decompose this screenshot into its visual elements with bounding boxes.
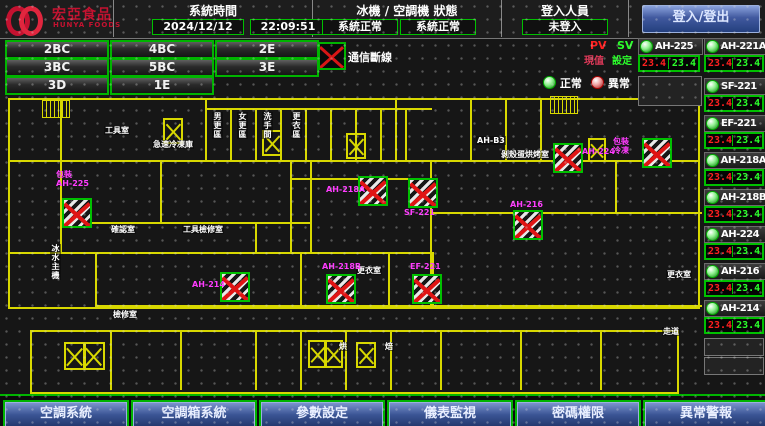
unit-name: AH-225	[655, 41, 693, 52]
time-display: 22:09:51	[250, 19, 326, 35]
sv-value: 23.4	[668, 58, 698, 69]
unit-row-AH-216[interactable]: AH-216	[704, 263, 765, 280]
device-label-line: AH-224	[582, 147, 615, 156]
room-label: 男更區	[212, 112, 223, 139]
unit-values-SF-221: 23.423.4	[704, 95, 764, 112]
wall	[8, 160, 543, 162]
status-lamp-AH-224	[706, 228, 719, 241]
zone-button-4BC[interactable]: 4BC	[110, 40, 214, 59]
header-divider	[628, 0, 629, 37]
unit-values-AH-221A: 23.423.4	[704, 55, 764, 72]
device-icon-冷凍[interactable]	[642, 138, 672, 168]
unit-name: SF-221	[721, 81, 757, 92]
zone-button-3E[interactable]: 3E	[215, 58, 319, 77]
login-status-display: 未登入	[522, 19, 608, 35]
room-label: 確認室	[110, 225, 136, 234]
room-label: 更衣區	[291, 112, 302, 139]
pv-value: 23.4	[706, 209, 732, 220]
wall	[330, 108, 332, 160]
device-icon-EF-221[interactable]	[412, 274, 442, 304]
nav-frame: 密碼權限	[515, 400, 641, 426]
device-icon-AH-218B[interactable]	[326, 274, 356, 304]
device-label-line: SF-221	[404, 208, 435, 217]
unit-name: EF-221	[721, 118, 756, 129]
wall	[110, 330, 112, 390]
comm-loss-icon	[318, 42, 346, 70]
device-label-AH-218A: AH-218A	[326, 185, 365, 194]
pv-value: 23.4	[706, 320, 732, 331]
wall	[180, 330, 182, 390]
header-divider	[113, 0, 114, 37]
device-label-line: AH-216	[510, 200, 543, 209]
login-logout-button[interactable]: 登入/登出	[642, 5, 760, 33]
zone-button-1E[interactable]: 1E	[110, 76, 214, 95]
unit-name: AH-224	[721, 229, 759, 240]
shaft-icon	[356, 342, 376, 368]
nav-frame: 儀表監視	[387, 400, 513, 426]
pv-header: PV	[590, 39, 607, 52]
unit-values-AH-216: 23.423.4	[704, 280, 764, 297]
empty-slot	[638, 76, 702, 106]
zone-button-3BC[interactable]: 3BC	[5, 58, 109, 77]
room-label: 冰水主機	[50, 244, 61, 280]
unit-row-AH-225[interactable]: AH-225	[638, 38, 703, 55]
device-label-line: 包裝	[56, 170, 89, 179]
device-label-AH-214: AH-214	[192, 280, 225, 289]
unit-row-AH-224[interactable]: AH-224	[704, 226, 765, 243]
wall	[205, 108, 432, 110]
normal-legend-label: 正常	[560, 77, 582, 90]
abnormal-lamp-legend: 異常	[591, 75, 630, 91]
normal-lamp-legend: 正常	[543, 75, 582, 91]
device-label-line: AH-225	[56, 179, 89, 188]
unit-values-EF-221: 23.423.4	[704, 132, 764, 149]
device-icon-AH-216[interactable]	[513, 210, 543, 240]
zone-button-5BC[interactable]: 5BC	[110, 58, 214, 77]
wall	[300, 330, 302, 390]
unit-name: AH-214	[721, 303, 759, 314]
room-label: 更衣室	[666, 270, 692, 279]
wall	[205, 98, 207, 160]
status-lamp-AH-214	[706, 302, 719, 315]
stairs-icon	[550, 96, 578, 114]
wall	[255, 108, 257, 160]
wall	[388, 252, 390, 305]
nav-button-空調系統[interactable]: 空調系統	[5, 402, 127, 426]
room-label: 焙	[384, 342, 394, 351]
wall	[8, 252, 433, 254]
device-label-冷凍: 包裝冷凍	[613, 137, 629, 155]
nav-button-異常警報[interactable]: 異常警報	[645, 402, 765, 426]
hmi-screen: 宏亞食品 HUNYA FOODS 系統時間 2024/12/12 22:09:5…	[0, 0, 765, 426]
logo-subtitle: HUNYA FOODS	[53, 21, 121, 29]
wall	[600, 330, 602, 390]
empty-slot	[704, 357, 764, 375]
status-lamp-AH-218A	[706, 154, 719, 167]
device-label-AH-224: AH-224	[582, 147, 615, 156]
wall	[390, 330, 392, 390]
device-label-line: AH-218B	[322, 262, 361, 271]
nav-button-儀表監視[interactable]: 儀表監視	[389, 402, 511, 426]
pv-value: 23.4	[706, 135, 732, 146]
pv-value: 23.4	[640, 58, 666, 69]
sv-value: 23.4	[732, 246, 762, 257]
room-label: 女更區	[237, 112, 248, 139]
empty-slot	[704, 338, 764, 356]
unit-row-AH-218B[interactable]: AH-218B	[704, 189, 765, 206]
device-label-line: AH-214	[192, 280, 225, 289]
unit-values-AH-224: 23.423.4	[704, 243, 764, 260]
unit-row-SF-221[interactable]: SF-221	[704, 78, 765, 95]
comm-loss-legend-label: 通信斷線	[348, 49, 392, 65]
room-label: 急速冷凍庫	[152, 140, 194, 149]
nav-frame: 空調系統	[3, 400, 129, 426]
wall	[310, 160, 312, 254]
unit-name: AH-218A	[721, 155, 765, 166]
abnormal-legend-label: 異常	[608, 77, 630, 90]
sv-value: 23.4	[732, 209, 762, 220]
chiller-status-display: 系統正常	[322, 19, 398, 35]
sv-header: SV	[617, 39, 633, 52]
wall	[405, 108, 407, 160]
system-time-label: 系統時間	[116, 2, 310, 19]
login-user-label: 登入人員	[504, 2, 626, 19]
room-label: 剝殼蛋烘烤室	[500, 150, 550, 159]
wall	[380, 108, 382, 160]
device-label-line: EF-221	[410, 262, 441, 271]
wall	[95, 305, 702, 307]
device-label-AH-216: AH-216	[510, 200, 543, 209]
stairs-icon	[42, 100, 70, 118]
wall	[95, 252, 97, 307]
unit-values-AH-218B: 23.423.4	[704, 206, 764, 223]
header-bar: 宏亞食品 HUNYA FOODS 系統時間 2024/12/12 22:09:5…	[0, 0, 765, 39]
wall	[395, 98, 397, 160]
unit-values-AH-225: 23.423.4	[638, 55, 700, 72]
status-lamp-AH-216	[706, 265, 719, 278]
wall	[255, 222, 257, 254]
unit-name: AH-221A	[721, 41, 765, 52]
wall	[430, 212, 702, 214]
normal-lamp-icon	[543, 76, 556, 89]
wall	[230, 108, 232, 160]
room-label: 工具室	[104, 126, 130, 135]
date-display: 2024/12/12	[152, 19, 244, 35]
building-outline	[30, 330, 679, 394]
machine-status-label: 冰機 / 空調機 狀態	[315, 2, 499, 19]
status-lamp-AH-225	[640, 40, 653, 53]
status-lamp-AH-221A	[706, 40, 719, 53]
status-lamp-EF-221	[706, 117, 719, 130]
sv-value: 23.4	[732, 172, 762, 183]
device-label-EF-221: EF-221	[410, 262, 441, 271]
unit-values-AH-214: 23.423.4	[704, 317, 764, 334]
sv-value: 23.4	[732, 58, 762, 69]
wall	[345, 330, 347, 390]
shaft-icon	[83, 342, 105, 370]
nav-button-參數設定[interactable]: 參數設定	[261, 402, 383, 426]
wall	[300, 252, 302, 305]
wall	[255, 330, 257, 390]
abnormal-lamp-icon	[591, 76, 604, 89]
pv-value: 23.4	[706, 58, 732, 69]
navigation-bar: 空調系統空調箱系統參數設定儀表監視密碼權限異常警報	[0, 394, 765, 426]
nav-frame: 空調箱系統	[131, 400, 257, 426]
device-icon-AH-224[interactable]	[553, 143, 583, 173]
nav-frame: 異常警報	[643, 400, 765, 426]
device-icon-SF-221[interactable]	[408, 178, 438, 208]
unit-row-AH-221A[interactable]: AH-221A	[704, 38, 765, 55]
unit-row-EF-221[interactable]: EF-221	[704, 115, 765, 132]
nav-button-空調箱系統[interactable]: 空調箱系統	[133, 402, 255, 426]
wall	[305, 108, 307, 160]
unit-name: AH-218B	[721, 192, 765, 203]
unit-row-AH-218A[interactable]: AH-218A	[704, 152, 765, 169]
sv-value: 23.4	[732, 135, 762, 146]
room-label: 工具檢修室	[182, 225, 224, 234]
device-label-SF-221: SF-221	[404, 208, 435, 217]
room-label: AH-B3	[476, 136, 506, 145]
shaft-icon	[346, 133, 366, 159]
device-label-AH-225: 包裝AH-225	[56, 170, 89, 188]
wall	[290, 160, 292, 254]
wall	[520, 330, 522, 390]
zone-button-2BC[interactable]: 2BC	[5, 40, 109, 59]
pv-value: 23.4	[706, 283, 732, 294]
pv-value: 23.4	[706, 98, 732, 109]
pv-value: 23.4	[706, 172, 732, 183]
pv-value: 23.4	[706, 246, 732, 257]
room-label: 烘	[338, 342, 348, 351]
wall	[470, 98, 472, 160]
wall	[440, 330, 442, 390]
unit-name: AH-216	[721, 266, 759, 277]
status-lamp-AH-218B	[706, 191, 719, 204]
device-label-line: AH-218A	[326, 185, 365, 194]
room-label: 檢修室	[112, 310, 138, 319]
room-label: 洗手間	[262, 112, 273, 139]
sv-value: 23.4	[732, 320, 762, 331]
wall	[160, 160, 162, 224]
nav-frame: 參數設定	[259, 400, 385, 426]
device-label-AH-218B: AH-218B	[322, 262, 361, 271]
header-divider	[501, 0, 502, 37]
device-icon-AH-225[interactable]	[62, 198, 92, 228]
device-label-line: 包裝	[613, 137, 629, 146]
wall	[615, 160, 617, 214]
unit-values-AH-218A: 23.423.4	[704, 169, 764, 186]
nav-button-密碼權限[interactable]: 密碼權限	[517, 402, 639, 426]
logo-icon	[6, 4, 46, 32]
device-label-line: 冷凍	[613, 146, 629, 155]
zone-button-2E[interactable]: 2E	[215, 40, 319, 59]
sv-value: 23.4	[732, 98, 762, 109]
zone-button-3D[interactable]: 3D	[5, 76, 109, 95]
wall	[60, 222, 312, 224]
room-label: 走道	[662, 327, 680, 336]
sv-value: 23.4	[732, 283, 762, 294]
ahu-status-display: 系統正常	[400, 19, 476, 35]
sv-caption: 設定	[612, 52, 632, 67]
pv-caption: 現值	[584, 52, 604, 67]
unit-row-AH-214[interactable]: AH-214	[704, 300, 765, 317]
status-lamp-SF-221	[706, 80, 719, 93]
